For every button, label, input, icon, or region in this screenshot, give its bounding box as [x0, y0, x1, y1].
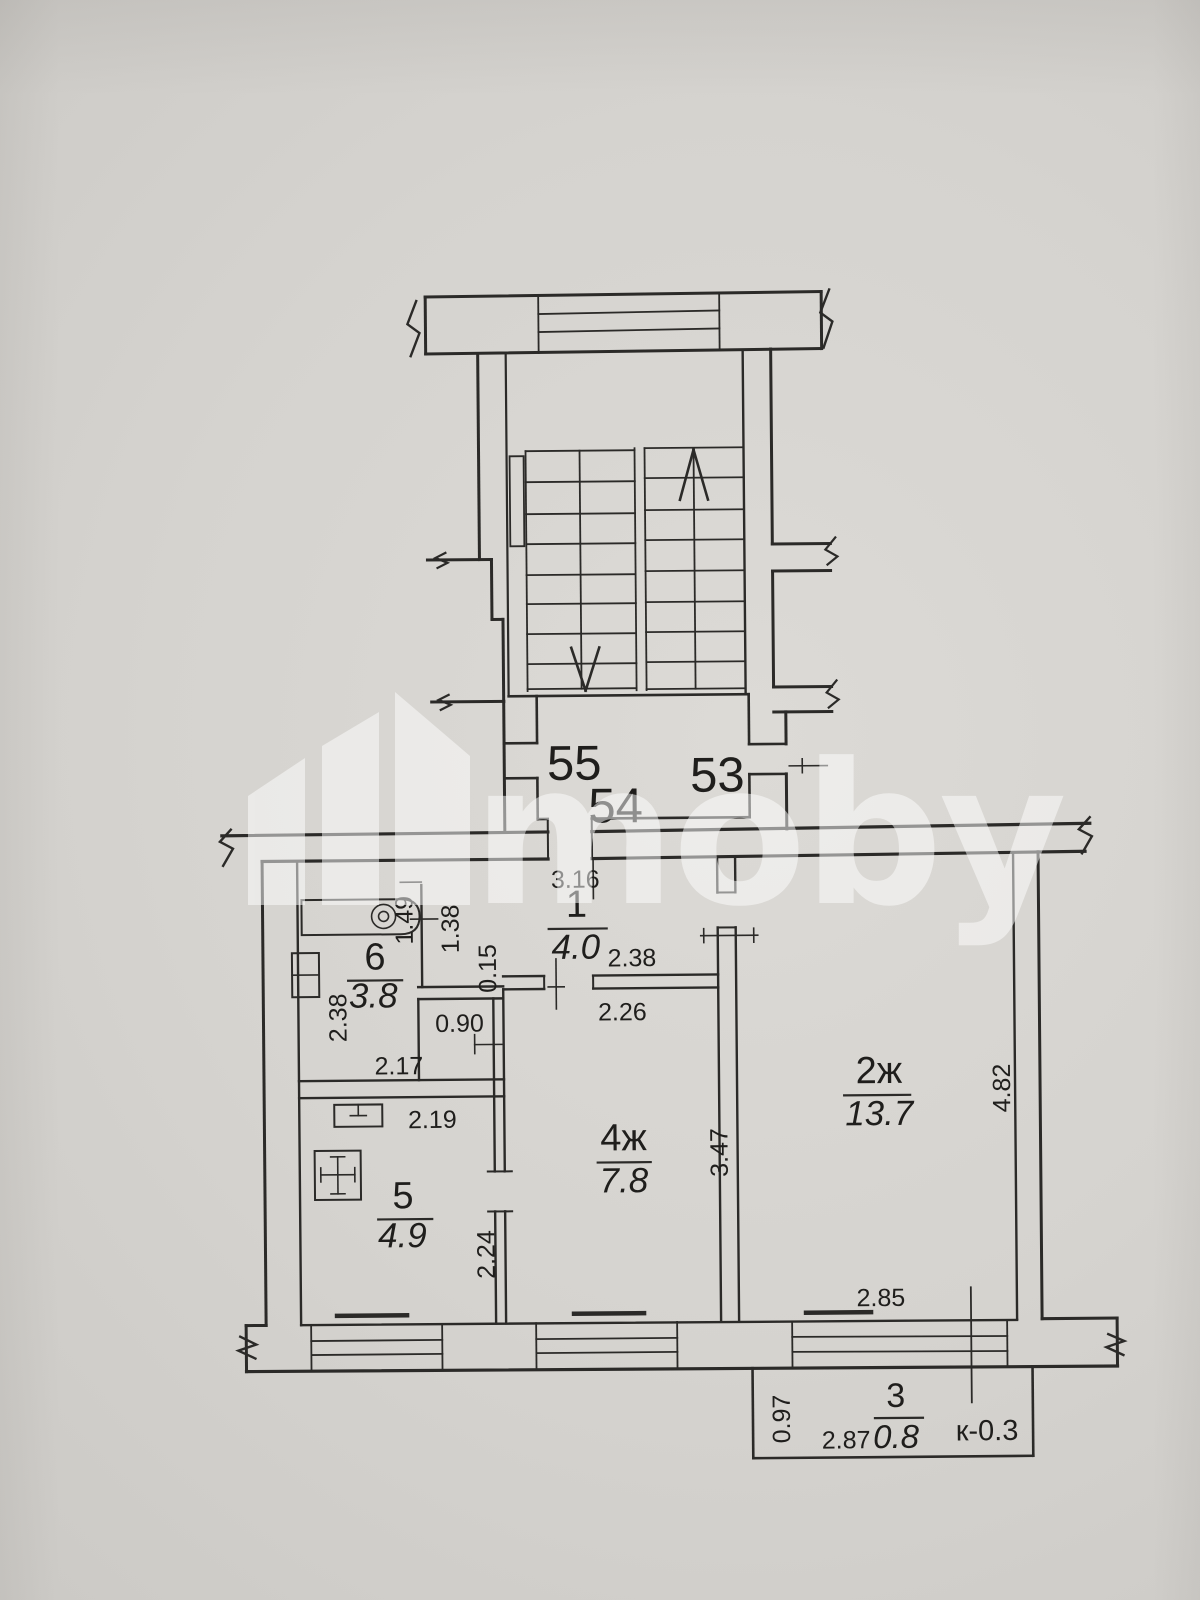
wall-break-icon: [827, 680, 839, 707]
room-area-balcony: 0.8: [873, 1418, 920, 1455]
watermark-logo-icon: [322, 712, 379, 905]
stairwell-window: [538, 292, 720, 353]
room-area-living: 13.7: [845, 1094, 915, 1134]
stairwell-top-wall: [407, 289, 833, 356]
dimension-label: 2.19: [408, 1106, 457, 1134]
watermark-logo-icon: [248, 758, 305, 905]
living-room-window: [792, 1320, 1007, 1368]
wall-break-icon: [825, 537, 837, 564]
watermark-logo-icon: [395, 692, 470, 905]
room-area-bedroom: 7.8: [599, 1161, 649, 1200]
stair-flight-left: [509, 448, 636, 691]
dimension-label: 2.38: [324, 993, 352, 1042]
dimension-label: 1.38: [436, 904, 464, 953]
window-sill-mark: [806, 1312, 871, 1313]
window-sill-mark: [337, 1315, 407, 1316]
window-sill-mark: [574, 1313, 644, 1314]
wall-break-icon: [407, 301, 419, 356]
drain-icon: [379, 911, 389, 921]
room-number-balcony: 3: [886, 1377, 905, 1415]
balcony-coefficient-label: к-0.3: [956, 1415, 1019, 1448]
dimension-label: 0.15: [474, 944, 502, 993]
bedroom-window: [536, 1322, 677, 1369]
room-area-kitchen: 4.9: [378, 1216, 427, 1255]
room-number-kitchen: 5: [392, 1175, 414, 1217]
apartment-bottom-wall: [246, 1309, 1124, 1374]
stair-flight-right: [644, 447, 745, 690]
dimension-label: 0.97: [768, 1395, 796, 1444]
dimension-label: 0.90: [435, 1010, 484, 1038]
room-number-living: 2ж: [855, 1050, 902, 1092]
apartment-left-wall: [234, 861, 301, 1372]
room-area-bathroom: 3.8: [349, 976, 399, 1015]
floor-plan-drawing: 55 54 53 3.16 1 4.0 2.38 2.26 1.49 1.38 …: [0, 0, 1200, 1600]
wall-break-icon: [238, 1337, 256, 1359]
scanned-floor-plan-photo: 55 54 53 3.16 1 4.0 2.38 2.26 1.49 1.38 …: [0, 0, 1200, 1600]
dimension-label: 2.85: [856, 1284, 905, 1312]
dimension-label: 2.26: [598, 998, 647, 1026]
room-number-bedroom: 4ж: [600, 1117, 647, 1159]
dimension-label: 3.47: [705, 1128, 733, 1177]
dimension-label: 2.17: [374, 1052, 423, 1080]
watermark: moby: [248, 692, 1064, 950]
dimension-label: 2.87: [822, 1426, 871, 1454]
kitchen-window: [311, 1324, 442, 1371]
dimension-label: 4.82: [988, 1064, 1016, 1113]
watermark-text: moby: [472, 722, 1064, 950]
wall-break-icon: [1106, 1334, 1124, 1355]
stairs-down-arrow-icon: [571, 648, 599, 691]
room-number-bathroom: 6: [364, 936, 386, 978]
stove-icon: [315, 1151, 361, 1200]
kitchen-fixtures: [314, 1104, 383, 1200]
dimension-label: 2.24: [472, 1230, 500, 1279]
